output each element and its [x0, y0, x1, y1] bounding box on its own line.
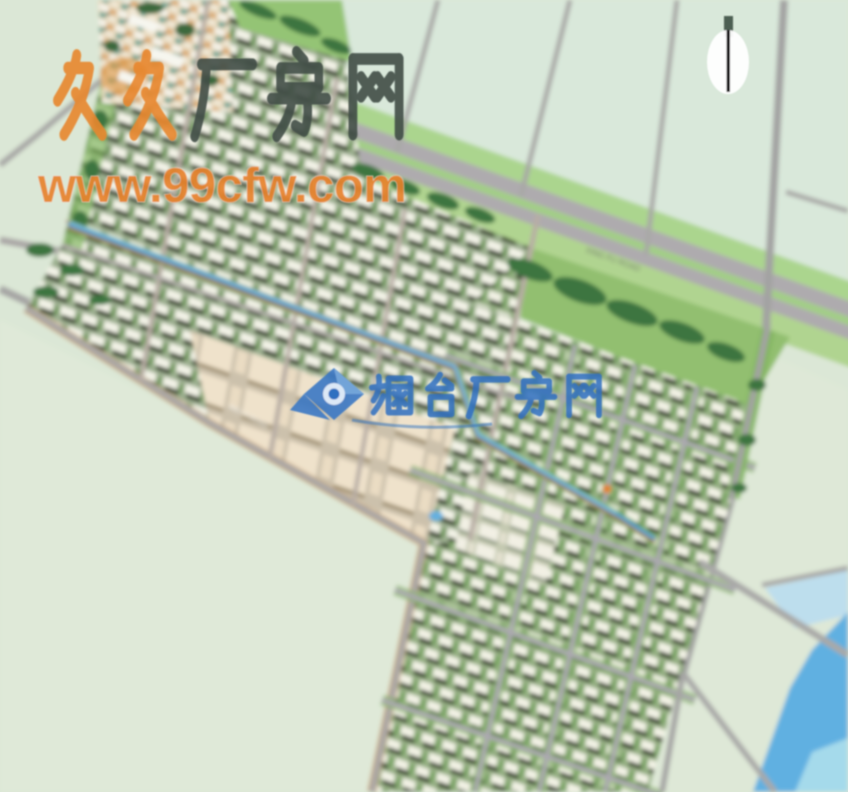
- svg-text:www.99cfw.com: www.99cfw.com: [37, 159, 406, 213]
